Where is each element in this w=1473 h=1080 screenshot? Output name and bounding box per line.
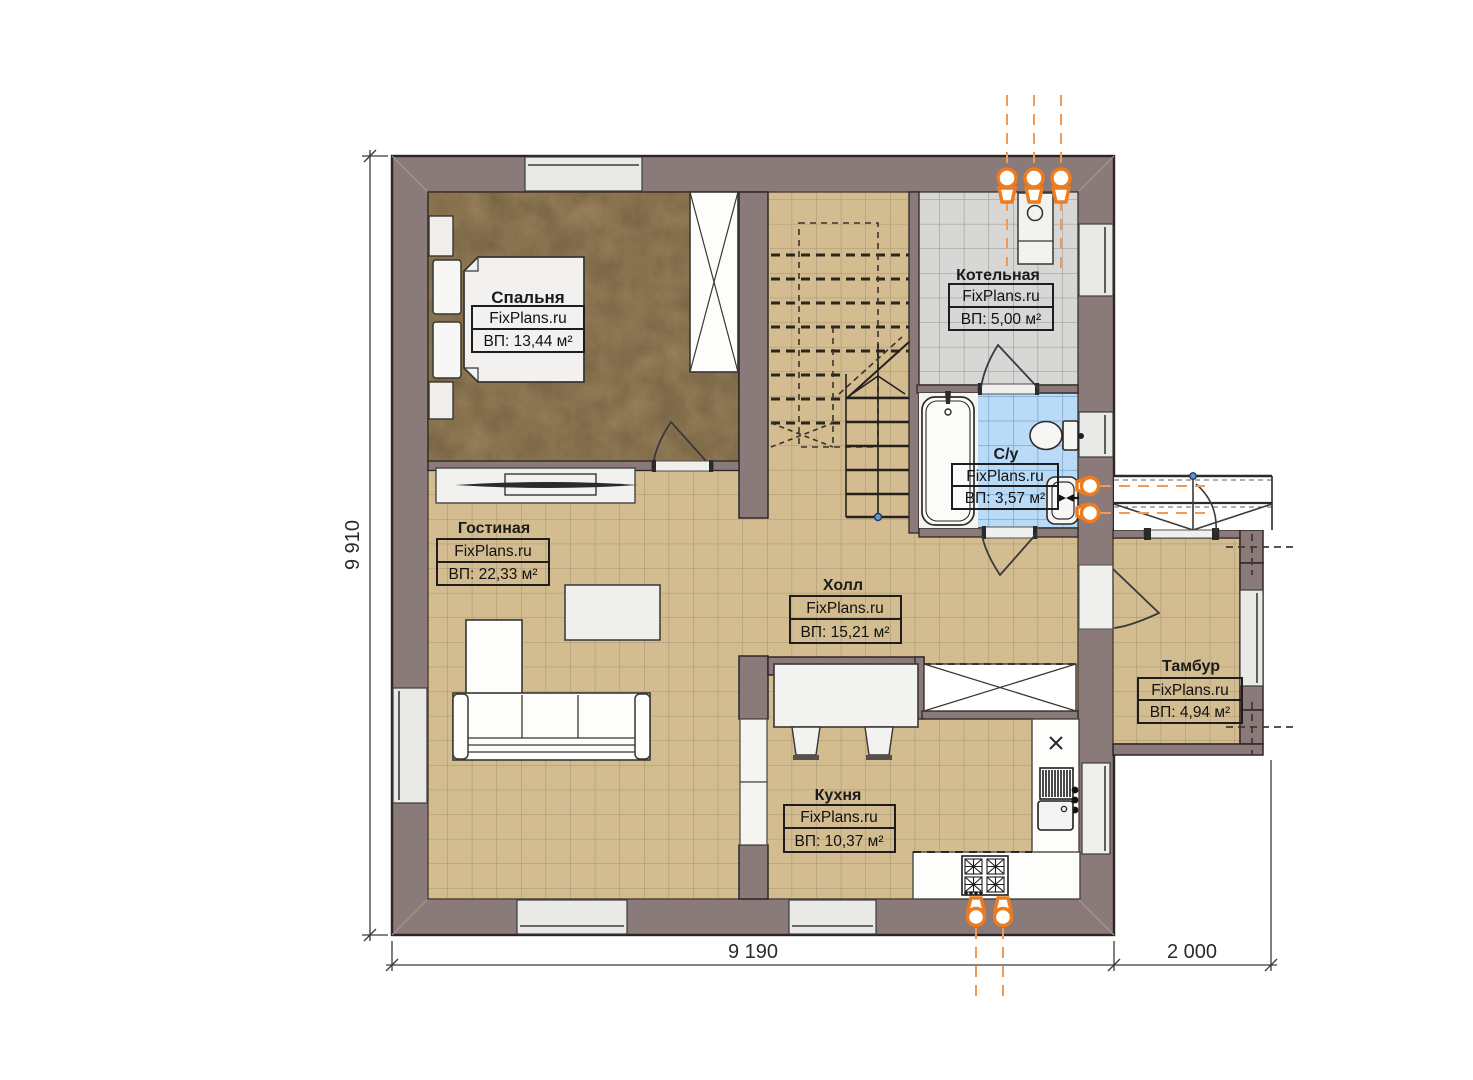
svg-text:С/у: С/у <box>994 446 1019 463</box>
svg-text:FixPlans.ru: FixPlans.ru <box>489 310 567 327</box>
svg-text:Кухня: Кухня <box>815 787 862 804</box>
svg-text:ВП: 10,37 м²: ВП: 10,37 м² <box>794 833 883 850</box>
svg-text:9 190: 9 190 <box>728 941 778 963</box>
svg-text:FixPlans.ru: FixPlans.ru <box>806 600 884 617</box>
svg-text:ВП: 22,33 м²: ВП: 22,33 м² <box>448 566 537 583</box>
svg-text:FixPlans.ru: FixPlans.ru <box>962 288 1040 305</box>
svg-text:2 000: 2 000 <box>1167 941 1217 963</box>
svg-text:ВП: 4,94 м²: ВП: 4,94 м² <box>1150 704 1230 721</box>
svg-text:Спальня: Спальня <box>491 288 564 307</box>
svg-text:Котельная: Котельная <box>956 267 1040 284</box>
svg-text:FixPlans.ru: FixPlans.ru <box>1151 682 1229 699</box>
svg-text:ВП: 13,44 м²: ВП: 13,44 м² <box>483 333 572 350</box>
svg-text:9 910: 9 910 <box>342 520 364 570</box>
svg-text:Гостиная: Гостиная <box>458 520 530 537</box>
svg-text:ВП: 15,21 м²: ВП: 15,21 м² <box>800 624 889 641</box>
svg-text:ВП: 3,57 м²: ВП: 3,57 м² <box>965 490 1045 507</box>
svg-text:ВП: 5,00 м²: ВП: 5,00 м² <box>961 311 1041 328</box>
svg-text:Тамбур: Тамбур <box>1162 658 1220 675</box>
svg-text:Холл: Холл <box>823 577 863 594</box>
svg-text:FixPlans.ru: FixPlans.ru <box>966 468 1044 485</box>
svg-text:FixPlans.ru: FixPlans.ru <box>454 543 532 560</box>
svg-text:FixPlans.ru: FixPlans.ru <box>800 809 878 826</box>
